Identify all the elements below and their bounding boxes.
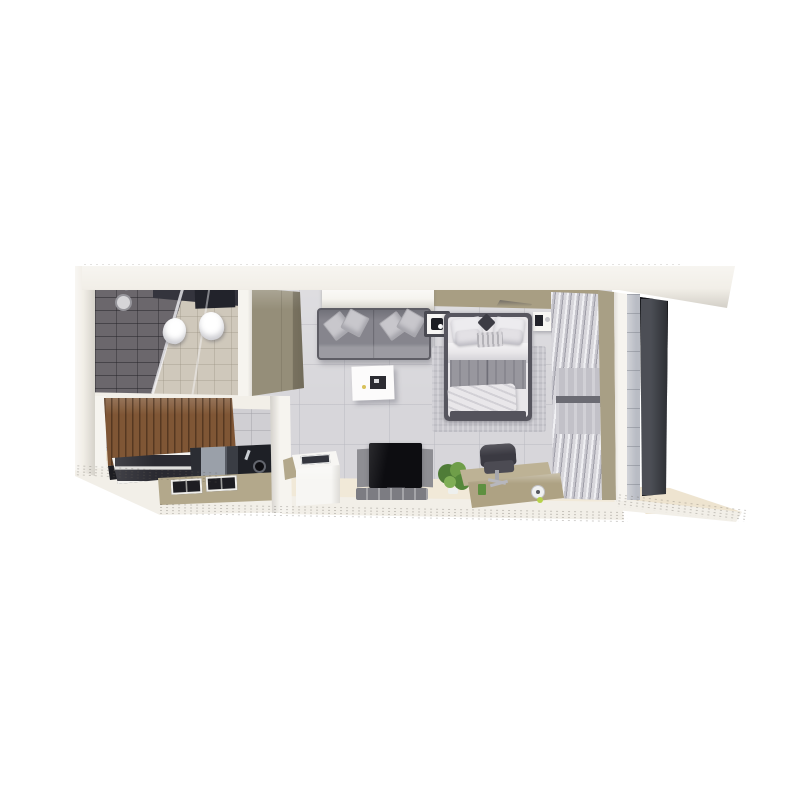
window-frame-bar [556,396,600,403]
tv-stand-right-panel [421,449,433,488]
coffee-table-flower [362,385,366,389]
shower-head [115,294,132,311]
wardrobe [252,288,304,396]
desk-green-can [478,484,486,495]
edge-shadow [82,263,682,267]
nightstand-right-item [535,315,543,326]
bathroom-divider-wall [238,284,254,396]
cistern [195,287,236,308]
bed-footboard [450,411,526,420]
office-chair-seat [484,460,515,474]
nightstand-left-item-detail [438,324,443,329]
kitchen-wall-jamb [95,396,106,468]
bed-striped-pillow [477,331,504,347]
kitchen-divider-wall [270,396,292,513]
desk-lime-item [537,497,543,503]
plant-pot [448,488,458,494]
balcony-sliding-door [638,296,670,498]
nightstand-right-item-detail [545,317,550,322]
television [369,443,422,488]
potted-plant-leaf [444,476,456,488]
floorplan-render [0,0,800,800]
desk-round-item-center [536,490,540,494]
balcony-tiled-strip [627,294,640,500]
washing-machine-front [296,465,340,506]
tv-stand-left-panel [357,449,369,488]
stove-burner [253,460,266,473]
bathroom [95,284,240,396]
media-mat [356,488,428,500]
coffee-table-tray-detail [374,379,379,383]
outer-wall-left [75,266,95,476]
